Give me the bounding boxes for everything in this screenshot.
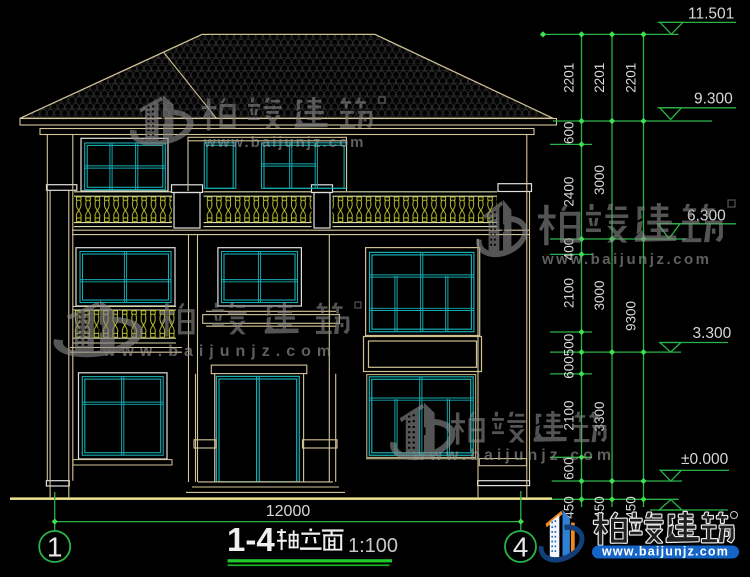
svg-text:600: 600 [562,121,577,144]
svg-text:3.300: 3.300 [693,325,732,342]
svg-text:1-4: 1-4 [227,521,275,558]
svg-text:±0.000: ±0.000 [681,451,729,468]
svg-text:www.baijunjz.com: www.baijunjz.com [203,134,365,151]
svg-text:4: 4 [513,532,529,563]
svg-text:9.300: 9.300 [694,91,733,108]
svg-text:www.baijunjz.com: www.baijunjz.com [601,545,729,559]
svg-text:2201: 2201 [624,63,639,93]
svg-text:2201: 2201 [592,63,607,93]
svg-text:www.baijunjz.com: www.baijunjz.com [412,447,615,464]
svg-text:3000: 3000 [592,280,607,310]
svg-text:2100: 2100 [562,278,577,308]
svg-text:11.501: 11.501 [688,6,734,23]
svg-text:600: 600 [562,356,577,379]
svg-text:www.baijunjz.com: www.baijunjz.com [102,343,337,360]
svg-text:9300: 9300 [624,301,639,331]
svg-text:1: 1 [47,532,63,563]
svg-text:12000: 12000 [266,503,311,520]
svg-text:1:100: 1:100 [348,535,398,557]
svg-text:500: 500 [562,334,577,357]
svg-text:www.baijunjz.com: www.baijunjz.com [541,251,711,268]
svg-text:2201: 2201 [562,63,577,93]
svg-text:2400: 2400 [562,177,577,207]
svg-text:3000: 3000 [592,165,607,195]
